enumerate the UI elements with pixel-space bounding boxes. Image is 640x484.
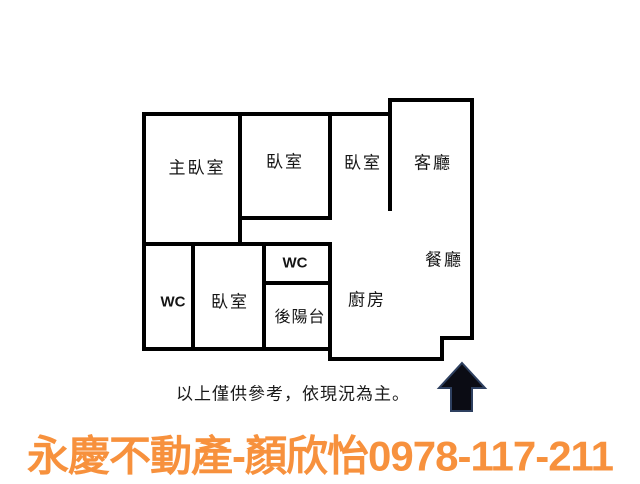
agency-contact-text: 永慶不動產-顏欣怡0978-117-211 — [27, 423, 613, 484]
room-label-bedroom-top-right: 臥室 — [344, 155, 382, 172]
room-label-master-bedroom: 主臥室 — [169, 160, 226, 177]
disclaimer-text: 以上僅供參考，依現況為主。 — [176, 380, 410, 405]
room-label-living-room: 客廳 — [414, 155, 452, 172]
up-arrow-icon — [439, 363, 485, 411]
room-label-wc-left: WC — [161, 295, 186, 310]
room-label-dining-room: 餐廳 — [425, 252, 463, 269]
room-label-wc-center: WC — [283, 256, 308, 271]
room-label-bedroom-top-center: 臥室 — [266, 154, 304, 171]
room-label-back-balcony: 後陽台 — [274, 310, 325, 326]
room-label-bedroom-bottom: 臥室 — [211, 294, 249, 311]
floor-plan-drawing — [0, 0, 640, 480]
room-label-kitchen: 廚房 — [348, 292, 386, 309]
floor-plan-page: 主臥室 臥室 臥室 客廳 餐廳 廚房 WC 臥室 WC 後陽台 以上僅供參考，依… — [0, 0, 640, 480]
